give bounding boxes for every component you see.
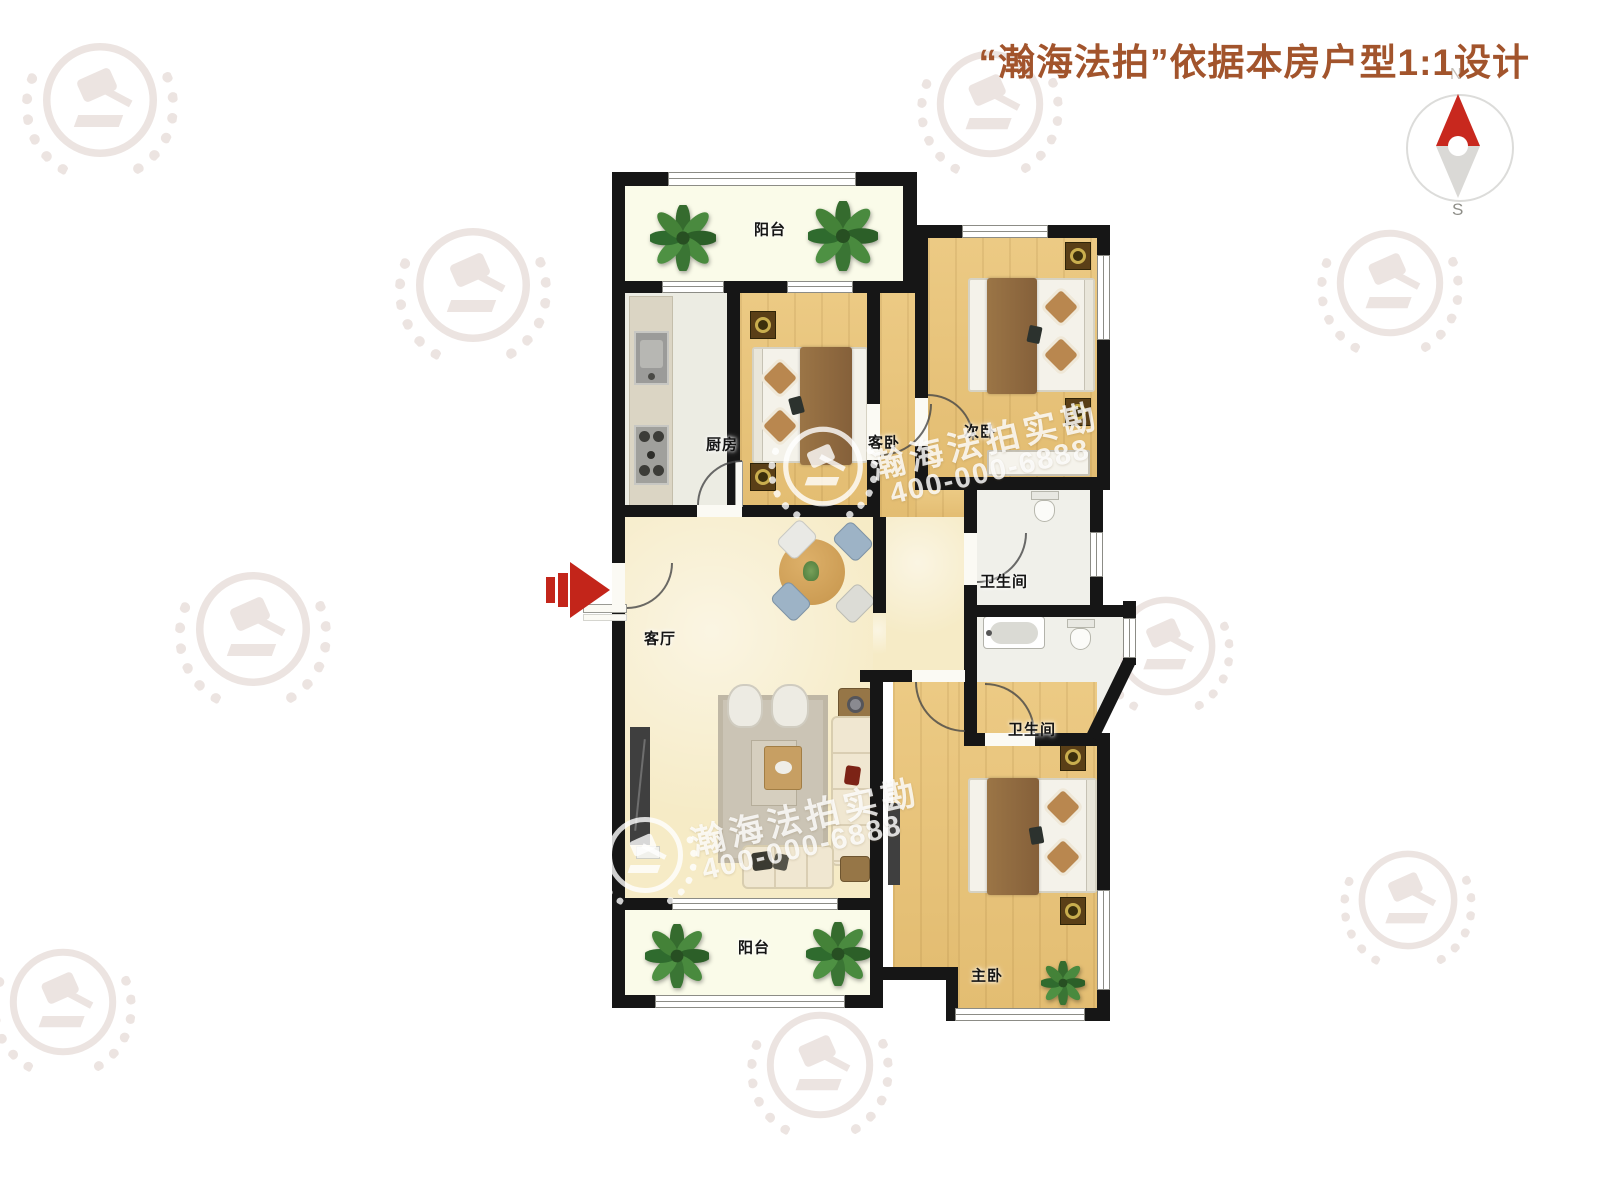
door-opening (912, 670, 965, 682)
room-label-living-room: 客厅 (644, 628, 676, 649)
watermark-logo-icon (1330, 835, 1486, 991)
nightstand-lamp (1060, 743, 1086, 771)
living-speaker (636, 846, 660, 859)
toilet (1067, 619, 1095, 651)
wall-segment (724, 281, 787, 293)
plant-icon (808, 201, 878, 271)
wall-segment (860, 670, 912, 682)
entry-arrow-icon (570, 562, 610, 618)
door-opening (697, 505, 742, 517)
plant-icon (806, 922, 870, 986)
window (1097, 255, 1110, 340)
second-bed (968, 278, 1095, 392)
watermark-logo-icon (0, 932, 147, 1100)
side-table (840, 856, 870, 882)
wall-segment (915, 238, 928, 398)
door-opening (612, 563, 625, 612)
page-title: “瀚海法拍”依据本房户型1:1设计 (979, 32, 1530, 86)
watermark-logo-icon (1306, 213, 1474, 381)
toilet (1031, 491, 1059, 523)
window (1090, 532, 1103, 577)
room-label-bathroom-2: 卫生间 (1008, 719, 1056, 740)
wall-segment (964, 490, 977, 533)
nightstand-lamp (750, 463, 776, 491)
window (955, 1008, 1085, 1021)
wall-segment (742, 505, 880, 517)
room-label-balcony-bottom: 阳台 (738, 937, 770, 958)
compass-south-label: S (1452, 200, 1463, 220)
kitchen-sink (634, 331, 669, 385)
window (672, 898, 838, 910)
floorplan: 阳台 厨房 客卧 次卧 卫生间 卫生间 客厅 主卧 阳台 (0, 0, 1600, 1200)
wall-segment (856, 172, 917, 186)
compass-hub-icon (1448, 136, 1468, 156)
watermark-logo-icon (10, 25, 190, 205)
living-tv-cabinet (630, 727, 650, 845)
living-room-floor (873, 613, 886, 670)
nightstand-lamp (1060, 897, 1086, 925)
plant-icon (1041, 961, 1085, 1005)
wall-segment (873, 517, 886, 613)
wall-segment (612, 612, 625, 1008)
window (668, 172, 856, 186)
wall-segment (612, 898, 672, 910)
wall-segment (965, 670, 977, 682)
wall-segment (838, 898, 883, 910)
bathtub (983, 616, 1045, 649)
plant-icon (645, 924, 709, 988)
room-label-balcony-top: 阳台 (754, 219, 786, 240)
window (787, 281, 853, 293)
plant-icon (650, 205, 716, 271)
window (1123, 618, 1136, 658)
guest-bed (752, 347, 868, 463)
watermark-logo-icon (736, 995, 904, 1163)
window (962, 225, 1048, 238)
wall-segment (920, 225, 962, 238)
armchair (727, 684, 763, 728)
room-label-master-bedroom: 主卧 (971, 965, 1003, 986)
window (662, 281, 724, 293)
room-label-kitchen: 厨房 (706, 434, 738, 455)
entry-arrow-icon (546, 577, 555, 603)
nightstand-lamp (1065, 242, 1091, 270)
wall-segment (612, 995, 655, 1008)
entry-arrow-icon (558, 573, 568, 607)
master-bed (968, 778, 1097, 893)
wall-segment (946, 1008, 955, 1021)
wall-segment (612, 505, 697, 517)
watermark-logo-icon (383, 210, 563, 390)
wall-segment (867, 293, 880, 404)
floorplan-page: “瀚海法拍”依据本房户型1:1设计 N S (0, 0, 1600, 1200)
window (1097, 890, 1110, 990)
wall-segment (964, 733, 985, 746)
window (655, 995, 845, 1008)
watermark-logo-icon (163, 554, 343, 734)
kitchen-stove (634, 425, 669, 485)
room-label-bathroom-1: 卫生间 (980, 571, 1028, 592)
coffee-table (764, 746, 802, 790)
wall-segment (964, 605, 1136, 617)
wall-segment (612, 281, 662, 293)
wall-segment (845, 995, 883, 1008)
armchair (771, 684, 809, 728)
nightstand-lamp (750, 311, 776, 339)
door-opening (964, 533, 977, 585)
